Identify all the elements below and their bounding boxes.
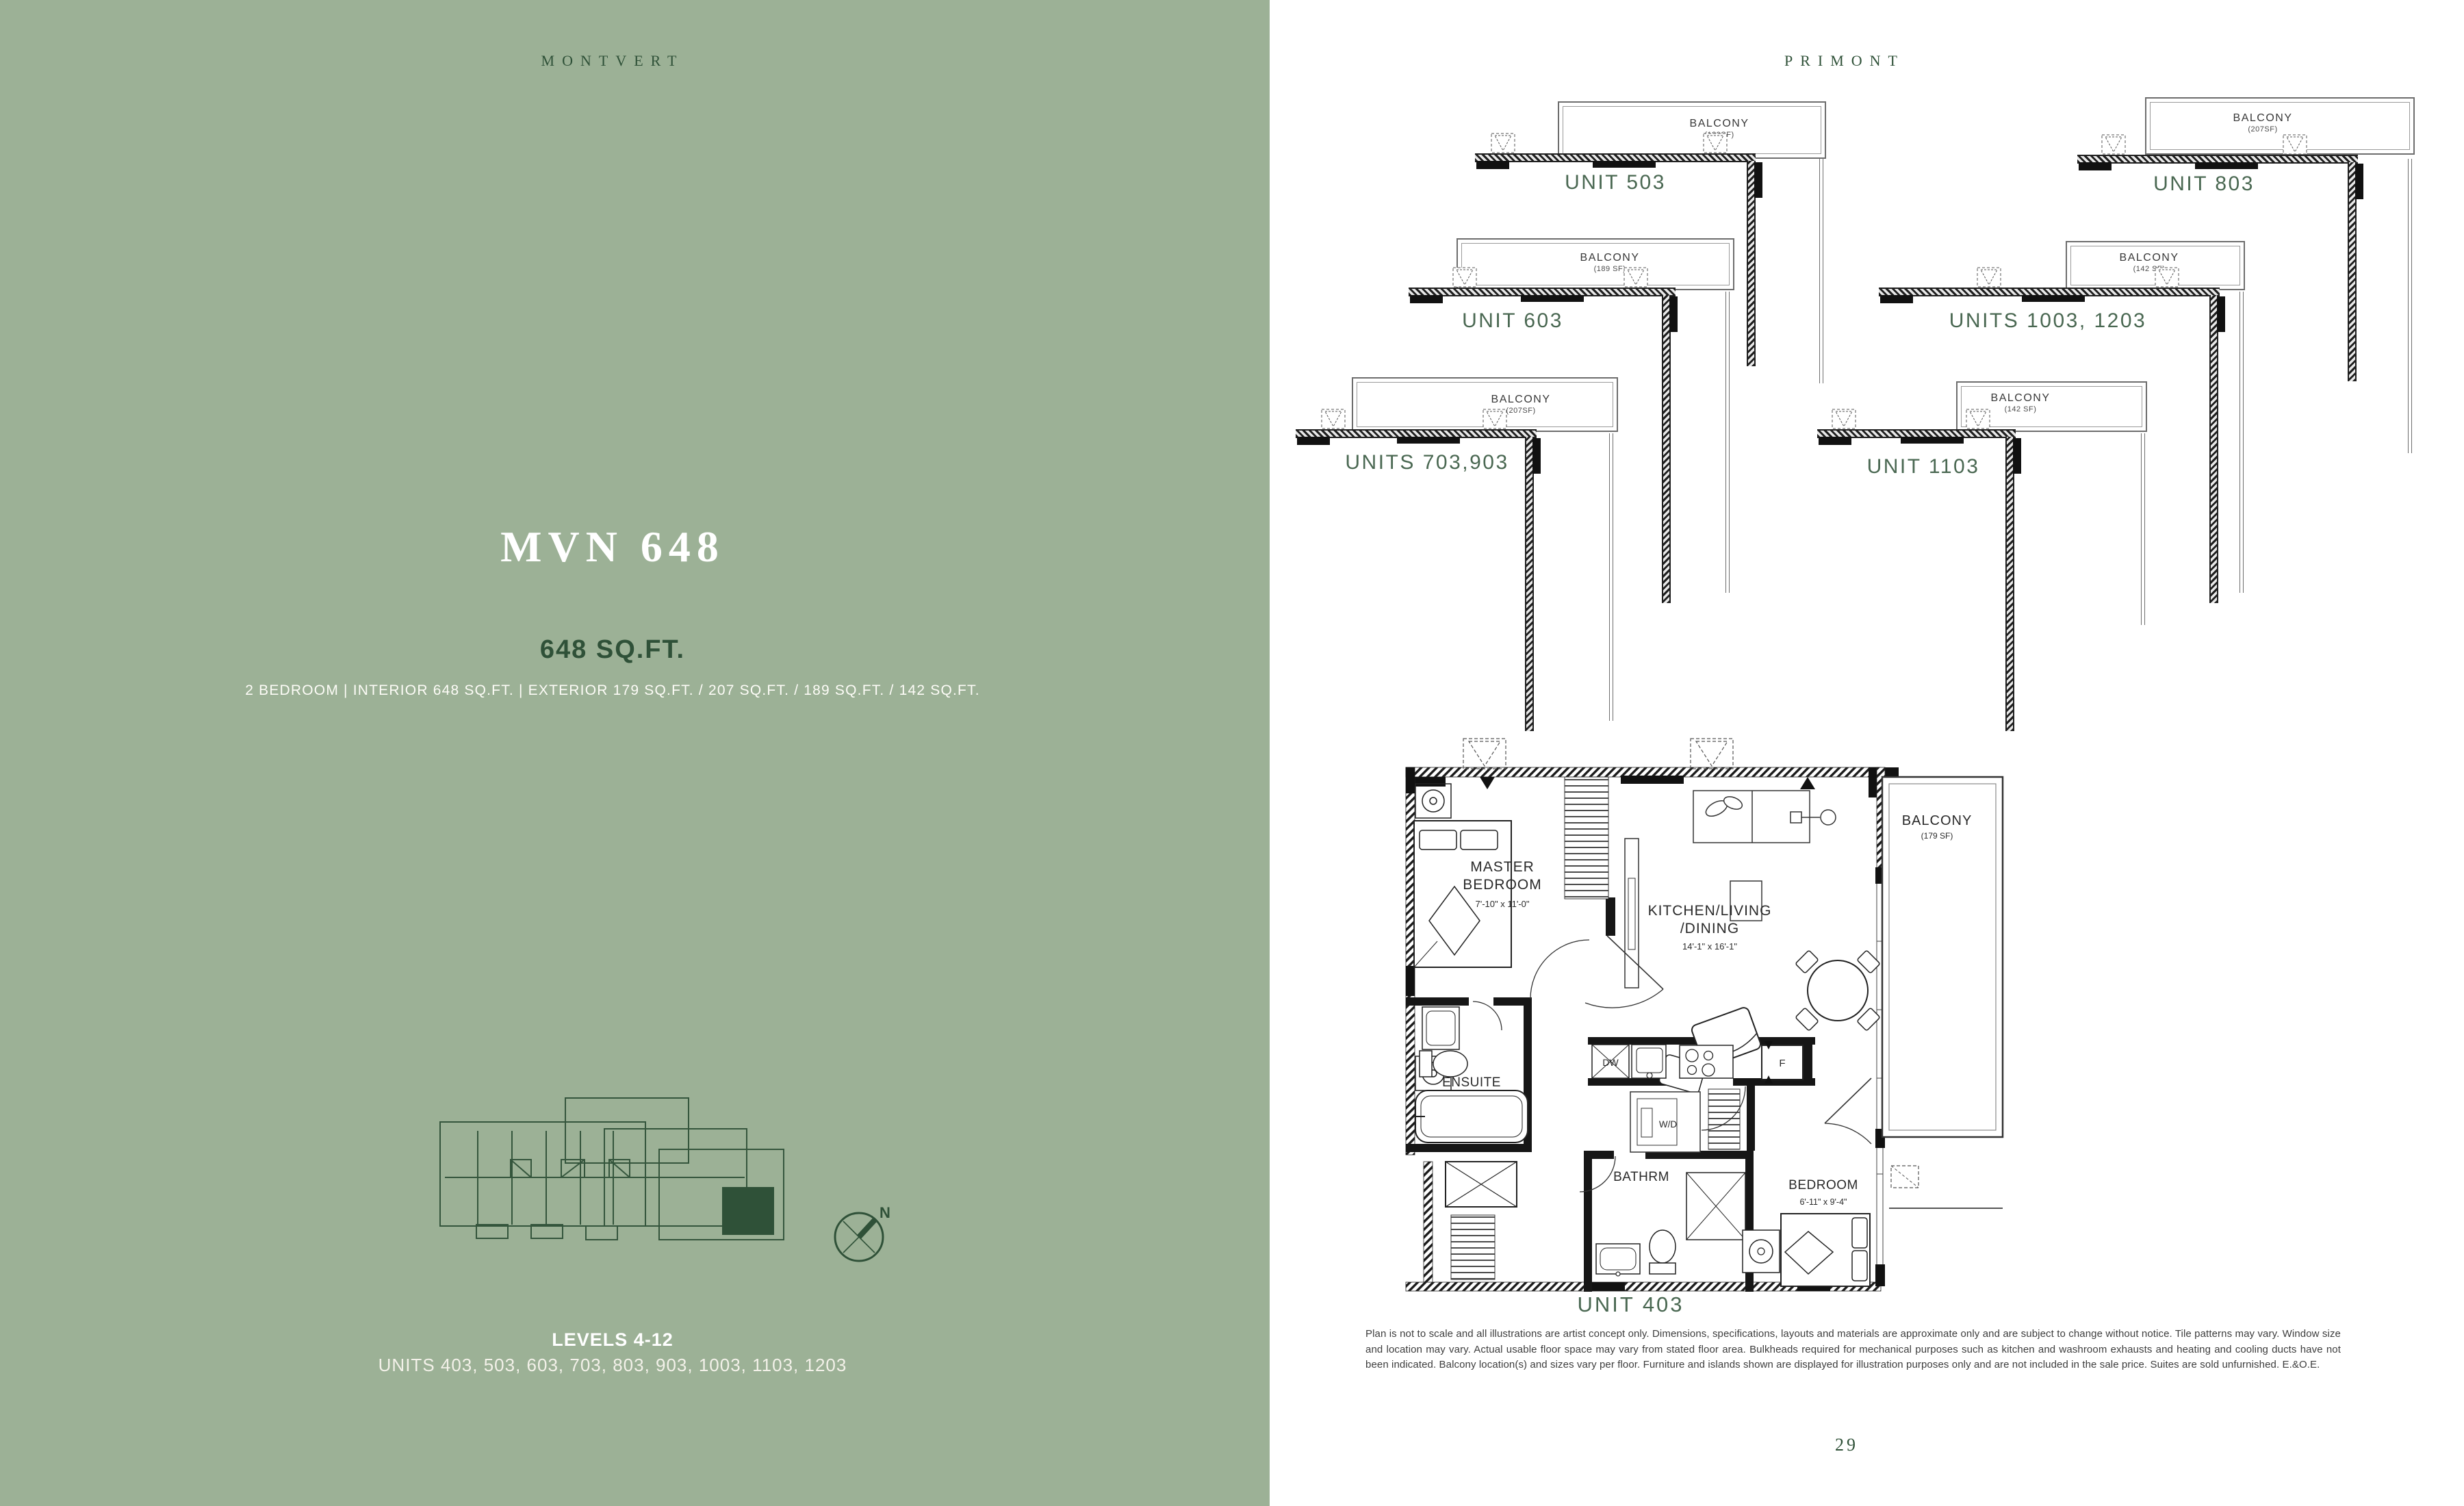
mini-unit-label: UNIT 603 [1403,309,1622,333]
mini-balcony-edge [1725,292,1730,593]
page-number: 29 [1744,1435,1949,1455]
window-marker-icon [1452,267,1477,288]
master-bedroom-label: BEDROOM [1463,877,1542,893]
levels-label: LEVELS 4-12 [407,1329,818,1351]
mini-balcony-label: BALCONY (207SF) [2208,112,2318,133]
kitchen-label: KITCHEN/LIVING [1648,903,1772,919]
mini-wall [1296,429,1537,438]
mini-unit-label: UNITS 1003, 1203 [1911,309,2185,333]
window-marker-icon [1491,133,1515,153]
mini-plan-units-703-903: BALCONY (207SF) UNITS 703,903 [1294,373,1636,746]
kitchen-label: /DINING [1680,921,1739,936]
window-marker-icon [1966,409,1990,429]
service-shaft [1446,1162,1517,1207]
closet-rod [1565,777,1608,899]
hall-closet-rod [1708,1089,1740,1149]
mini-unit-label: UNIT 503 [1478,171,1752,194]
brochure-page: MONTVERT MVN 648 648 SQ.FT. 2 BEDROOM | … [0,0,2464,1506]
master-bedroom-label: MASTER [1470,859,1535,875]
brand-montvert: MONTVERT [407,52,818,70]
main-unit-label: UNIT 403 [1526,1292,1735,1317]
mini-wall [1409,288,1676,296]
mini-unit-label: UNIT 1103 [1814,455,2033,478]
mini-balcony-label: BALCONY (189 SF) [1555,252,1665,273]
main-floor-plan: MASTER BEDROOM 7'-10" x 11'-0" KITCHEN/L… [1389,736,2012,1338]
bedroom-dims: 6'-11" x 9'-4" [1799,1197,1847,1207]
compass-north-label: N [880,1204,890,1221]
mini-balcony-edge [1819,157,1823,383]
mini-wall [2005,437,2014,731]
mini-wall [1817,429,2016,438]
mini-plan-unit-1103: BALCONY (142 SF) UNIT 1103 [1814,373,2156,746]
mini-wall [1475,153,1756,162]
mini-unit-label: UNITS 703,903 [1294,451,1561,474]
ensuite-label: ENSUITE [1442,1075,1501,1090]
window-marker-icon [1703,133,1728,153]
dining-set [1795,950,1880,1031]
keyplan-diagram [430,1091,793,1262]
balcony-label: BALCONY [1902,813,1973,828]
window-marker-icon [1624,267,1648,288]
window-marker-icon [1463,739,1733,769]
fridge-label: F [1779,1058,1785,1069]
bedroom-label: BEDROOM [1788,1178,1858,1192]
compass-icon: N [825,1195,900,1270]
balcony-area: (179 SF) [1921,831,1953,841]
brand-primont: PRIMONT [1639,52,2050,70]
plan-details-line: 2 BEDROOM | INTERIOR 648 SQ.FT. | EXTERI… [120,682,1105,699]
mini-unit-label: UNIT 803 [2074,173,2334,196]
dishwasher-label: DW [1602,1057,1619,1068]
mini-balcony-edge [2240,292,2244,593]
balcony-outline [1882,777,2003,1208]
mini-balcony-edge [2408,159,2412,453]
master-bed [1414,821,1511,967]
units-list: UNITS 403, 503, 603, 703, 803, 903, 1003… [305,1355,921,1376]
left-panel: MONTVERT MVN 648 648 SQ.FT. 2 BEDROOM | … [0,0,1270,1506]
master-bedroom-dims: 7'-10" x 11'-0" [1476,899,1530,909]
window-marker-icon [1321,409,1346,429]
square-footage: 648 SQ.FT. [407,635,818,665]
window-marker-icon [2283,134,2307,155]
disclaimer-text: Plan is not to scale and all illustratio… [1365,1327,2341,1373]
window-marker-icon [1977,267,2001,288]
mini-wall [2209,295,2218,603]
media-unit [1625,839,1639,988]
bathroom-label: BATHRM [1613,1170,1669,1184]
window-marker-icon [2101,134,2126,155]
kitchen-dims: 14'-1" x 16'-1" [1682,941,1737,952]
mini-balcony-edge [2141,433,2145,625]
window-marker-icon [2155,267,2179,288]
highlighted-unit [722,1187,774,1235]
mini-balcony-edge [1609,433,1613,721]
mini-balcony-label: BALCONY (142 SF) [2094,252,2204,273]
shaft-ladder [1451,1215,1495,1279]
mini-wall [1662,295,1671,603]
plan-title: MVN 648 [311,522,914,572]
mini-wall [2077,155,2358,164]
kitchen-appliances [1592,1041,1803,1084]
mini-wall [2348,162,2357,381]
window-marker-icon [1483,409,1507,429]
mini-wall [1525,437,1534,731]
washer-dryer-label: W/D [1659,1119,1677,1129]
window-marker-icon [1832,409,1856,429]
mini-wall [1879,288,2220,296]
